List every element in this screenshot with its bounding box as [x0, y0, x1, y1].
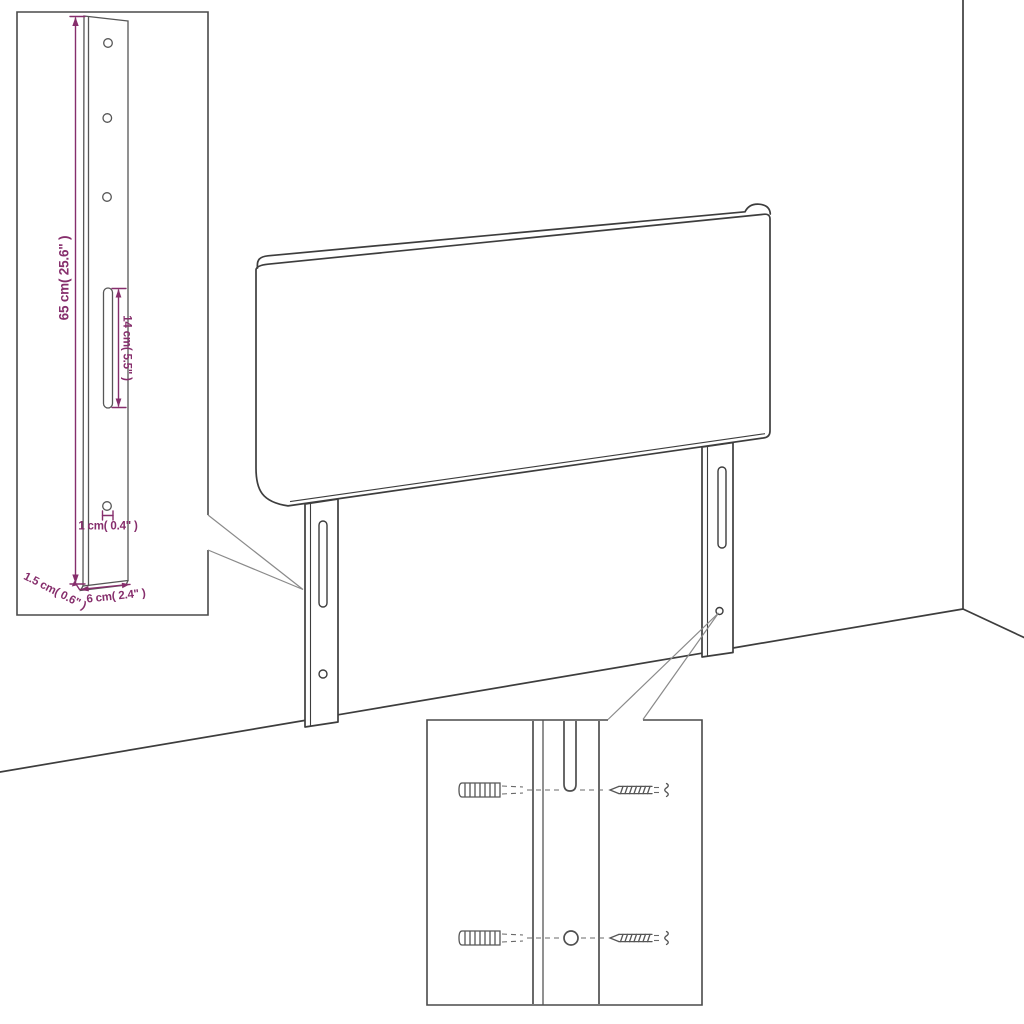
diagram-canvas: 65 cm( 25.6" ) 14 cm( 5.5" ) 1 cm( 0.4" … [0, 0, 1024, 1024]
detail-leg-small-hole [103, 502, 112, 511]
hardware-callout-line-right [643, 613, 719, 720]
headboard-assembly-diagram: 65 cm( 25.6" ) 14 cm( 5.5" ) 1 cm( 0.4" … [0, 0, 1024, 1024]
left-leg-slot [319, 521, 327, 607]
detail-leg-hole-2 [103, 114, 112, 123]
leg-callout-line-lower [208, 550, 303, 590]
headboard-panel [256, 204, 770, 506]
dim-label-leg-height: 65 cm( 25.6" ) [57, 236, 72, 321]
callout-wedges [208, 515, 719, 720]
leg-callout-line-upper [208, 515, 303, 590]
detail-leg-hole-1 [104, 39, 113, 48]
leg-detail-drawing [81, 16, 129, 591]
dim-label-hole-diameter: 1 cm( 0.4" ) [78, 521, 138, 533]
floor-line-left-segment [0, 720, 305, 772]
dim-label-slot-length: 14 cm( 5.5" ) [121, 315, 133, 381]
floor-line-right-segment [733, 609, 963, 648]
floor-line-middle-segment [338, 653, 702, 715]
right-leg-hole [716, 608, 723, 615]
headboard-panel-face [256, 214, 770, 506]
detail-leg-slot [104, 288, 113, 408]
headboard-left-leg [305, 499, 338, 727]
detail-leg-hole-3 [103, 193, 112, 202]
floor-line-right-wall [963, 609, 1024, 638]
left-leg-hole [319, 670, 327, 678]
right-leg-slot [718, 467, 726, 548]
